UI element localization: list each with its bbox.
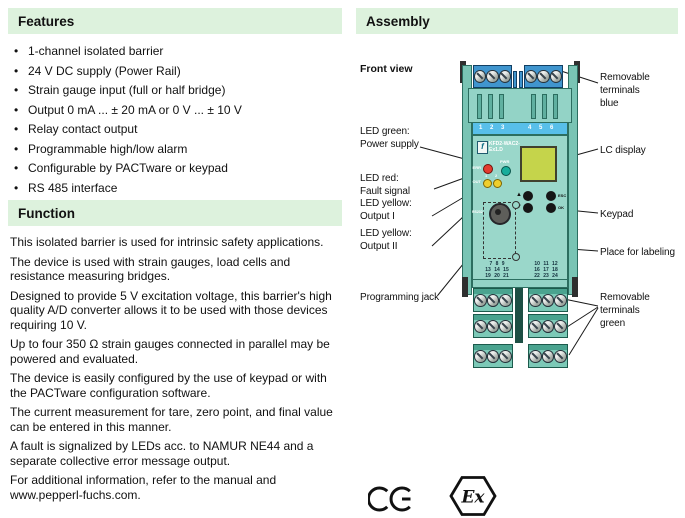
pf-logo-icon: f <box>477 141 488 154</box>
assembly-figure: Front view <box>356 55 682 420</box>
callout-line: Output I <box>360 210 412 223</box>
terminal-block-green <box>473 314 513 338</box>
number-row: 22 23 24 <box>527 273 565 279</box>
center-pin <box>519 71 523 88</box>
terminal-screw <box>474 320 487 333</box>
feature-item: Output 0 mA ... ± 20 mA or 0 V ... ± 10 … <box>14 101 340 121</box>
callout-terminals-blue: Removable terminals blue <box>600 71 684 110</box>
terminal-screw <box>542 320 555 333</box>
err-led-label: ERR <box>470 166 481 170</box>
terminal-screw <box>487 350 500 363</box>
terminal-screw <box>542 294 555 307</box>
power-led <box>501 166 511 176</box>
bottom-numbers-right: 10 11 12 16 17 18 22 23 24 <box>527 261 565 279</box>
function-paragraph: A fault is signalized by LEDs acc. to NA… <box>10 439 346 468</box>
function-header: Function <box>8 200 342 226</box>
pwr-led-label: PWR <box>500 160 509 164</box>
callout-terminals-green: Removable terminals green <box>600 291 684 330</box>
terminal-block-green <box>528 344 568 368</box>
terminal-block-blue-left <box>473 65 512 88</box>
callout-led-yellow-2: LED yellow: Output II <box>360 227 412 253</box>
function-paragraph: Up to four 350 Ω strain gauges connected… <box>10 337 346 366</box>
terminal-screw <box>537 70 549 83</box>
model-line-2: Ex1.D <box>489 148 520 154</box>
terminal-screw <box>529 350 542 363</box>
band-numbers-left: 1 2 3 <box>479 125 507 131</box>
terminal-screw <box>525 70 537 83</box>
callout-led-red: LED red: Fault signal <box>360 172 410 198</box>
terminal-screw <box>554 320 567 333</box>
terminal-screw <box>487 294 500 307</box>
terminal-screw <box>529 320 542 333</box>
terminal-screw <box>499 320 512 333</box>
callout-lc-display: LC display <box>600 144 646 157</box>
ex-mark-text: Ex <box>460 488 485 508</box>
feature-item: 1-channel isolated barrier <box>14 42 340 62</box>
terminal-screw <box>554 294 567 307</box>
terminal-screw <box>554 350 567 363</box>
vent-slot <box>553 94 558 119</box>
callout-line: Removable terminals <box>600 291 684 317</box>
terminal-block-green <box>528 314 568 338</box>
features-title: Features <box>18 14 74 29</box>
panel-hole <box>512 201 520 209</box>
out-led-label: OUT <box>468 180 481 184</box>
ok-button <box>546 203 556 213</box>
terminal-screw <box>474 294 487 307</box>
terminal-screw <box>499 350 512 363</box>
assembly-title: Assembly <box>366 14 430 29</box>
function-paragraph: The current measurement for tare, zero p… <box>10 405 346 434</box>
out2-number: 2 <box>495 174 497 178</box>
callout-line: green <box>600 317 684 330</box>
datasheet-page: Features 1-channel isolated barrier 24 V… <box>0 0 685 518</box>
callout-line: LED yellow: <box>360 227 412 240</box>
device-clamp-bottom-right <box>572 277 578 297</box>
output2-led <box>493 179 502 188</box>
terminal-screw <box>474 70 486 83</box>
bottom-center-post <box>515 288 523 343</box>
ex-mark-icon: Ex <box>448 473 498 518</box>
bottom-numbers-left: 7 8 9 13 14 15 19 20 21 <box>480 261 514 279</box>
callout-programming-jack: Programming jack <box>360 291 439 304</box>
callout-line: Removable terminals <box>600 71 684 97</box>
terminal-screw <box>529 294 542 307</box>
feature-item: 24 V DC supply (Power Rail) <box>14 62 340 82</box>
output1-led <box>483 179 492 188</box>
panel-bottom-strip <box>472 280 568 288</box>
features-header: Features <box>8 8 342 34</box>
down-button <box>523 203 533 213</box>
function-paragraph: This isolated barrier is used for intrin… <box>10 235 346 250</box>
programming-jack <box>489 203 511 225</box>
callout-line: LED green: <box>360 125 419 138</box>
callout-keypad: Keypad <box>600 208 633 221</box>
terminal-screw <box>499 294 512 307</box>
function-paragraph: The device is easily configured by the u… <box>10 371 346 400</box>
callout-labeling: Place for labeling <box>600 246 675 259</box>
function-paragraph: The device is used with strain gauges, l… <box>10 255 346 284</box>
callout-line: blue <box>600 97 684 110</box>
terminal-screw <box>542 350 555 363</box>
callout-line: LED red: <box>360 172 410 185</box>
number-row: 19 20 21 <box>480 273 514 279</box>
feature-item: Configurable by PACTware or keypad <box>14 159 340 179</box>
assembly-header: Assembly <box>356 8 678 34</box>
callout-line: Power supply <box>360 138 419 151</box>
feature-item: Strain gauge input (full or half bridge) <box>14 81 340 101</box>
lc-display <box>520 146 557 182</box>
terminal-screw <box>499 70 511 83</box>
out1-number: 1 <box>485 174 487 178</box>
function-paragraph: For additional information, refer to the… <box>10 473 346 502</box>
function-text: This isolated barrier is used for intrin… <box>10 235 346 507</box>
vent-slot <box>531 94 536 119</box>
terminal-block-green <box>473 344 513 368</box>
up-arrow-icon: ▲ <box>516 191 522 199</box>
panel-hole <box>512 253 520 261</box>
terminal-block-green <box>528 288 568 312</box>
feature-item: Relay contact output <box>14 120 340 140</box>
terminal-screw <box>487 320 500 333</box>
function-paragraph: Designed to provide 5 V excitation volta… <box>10 289 346 333</box>
band-numbers-right: 4 5 6 <box>528 125 556 131</box>
terminal-screw <box>550 70 562 83</box>
vent-slot <box>499 94 504 119</box>
features-list: 1-channel isolated barrier 24 V DC suppl… <box>14 42 340 218</box>
callout-line: LED yellow: <box>360 197 412 210</box>
callout-led-green: LED green: Power supply <box>360 125 419 151</box>
vent-slot <box>488 94 493 119</box>
callout-line: Output II <box>360 240 412 253</box>
terminal-screw <box>486 70 498 83</box>
center-pin <box>513 71 517 88</box>
feature-item: RS 485 interface <box>14 179 340 199</box>
device-clamp-bottom-left <box>462 277 468 297</box>
ok-button-label: OK <box>558 206 564 210</box>
esc-button <box>546 191 556 201</box>
terminal-block-green <box>473 288 513 312</box>
ce-mark-icon <box>368 481 414 517</box>
callout-led-yellow-1: LED yellow: Output I <box>360 197 412 223</box>
feature-item: Programmable high/low alarm <box>14 140 340 160</box>
vent-slot <box>542 94 547 119</box>
terminal-block-blue-right <box>524 65 563 88</box>
vent-slot <box>477 94 482 119</box>
esc-button-label: ESC <box>558 194 566 198</box>
terminal-screw <box>474 350 487 363</box>
jack-label: RS232 <box>472 210 483 214</box>
up-button <box>523 191 533 201</box>
function-title: Function <box>18 206 75 221</box>
device-model-label: KFD2-WAC2- Ex1.D <box>489 142 520 153</box>
